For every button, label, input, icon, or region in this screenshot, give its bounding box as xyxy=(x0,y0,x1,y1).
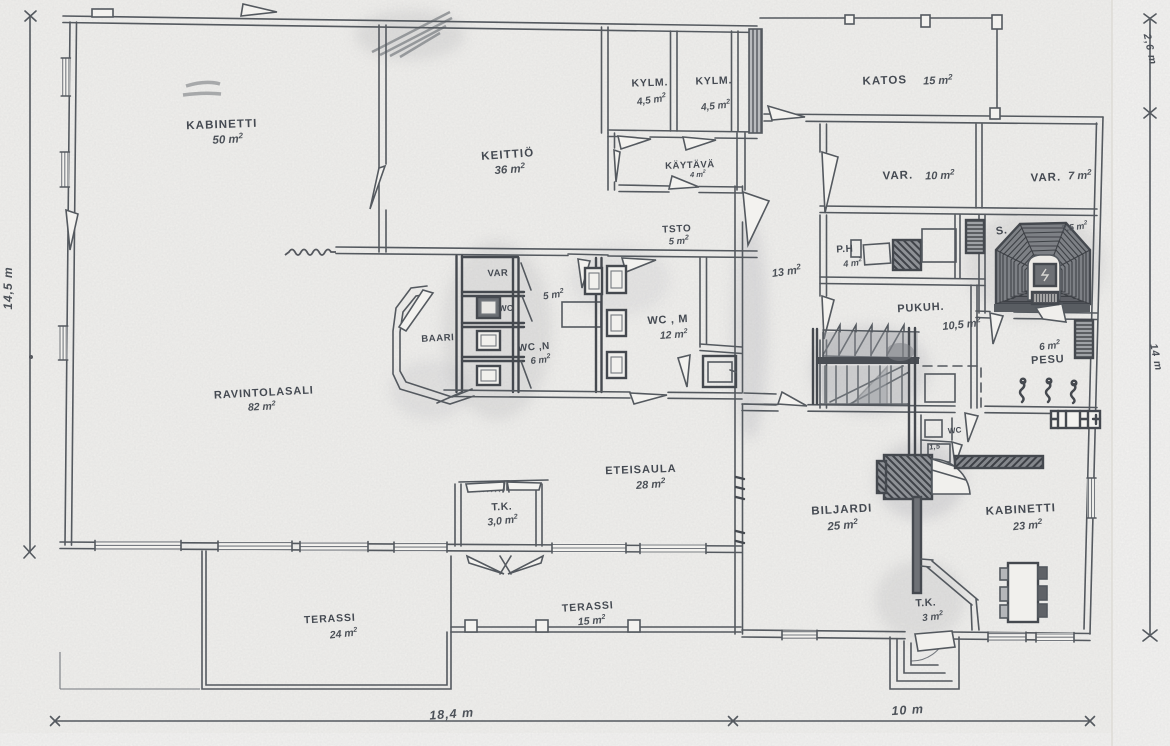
svg-text:1,5: 1,5 xyxy=(929,441,942,451)
svg-text:12 m2: 12 m2 xyxy=(659,328,688,342)
svg-text:VAR: VAR xyxy=(487,268,508,280)
svg-text:10 m: 10 m xyxy=(891,702,924,718)
svg-text:KATOS: KATOS xyxy=(862,74,907,88)
svg-text:KYLM.: KYLM. xyxy=(631,76,668,89)
svg-text:WC: WC xyxy=(498,303,513,314)
svg-text:KABINETTI: KABINETTI xyxy=(186,118,258,132)
svg-text:WC ,N: WC ,N xyxy=(518,341,551,354)
svg-text:VAR.: VAR. xyxy=(882,169,913,182)
svg-text:BAARI: BAARI xyxy=(421,332,455,345)
svg-text:S.: S. xyxy=(995,224,1008,237)
svg-text:82 m2: 82 m2 xyxy=(248,400,277,413)
svg-text:ETEISAULA: ETEISAULA xyxy=(605,463,677,477)
svg-text:P.H: P.H xyxy=(836,244,853,256)
svg-text:T.K.: T.K. xyxy=(915,596,936,609)
svg-text:KYLM.: KYLM. xyxy=(695,74,732,87)
svg-text:T.K.: T.K. xyxy=(491,500,512,513)
svg-text:15 m2: 15 m2 xyxy=(577,614,606,628)
svg-text:PESU: PESU xyxy=(1031,353,1065,367)
svg-text:VAR.: VAR. xyxy=(1030,171,1061,184)
svg-text:14,5 m: 14,5 m xyxy=(1,266,15,309)
svg-text:PUKUH.: PUKUH. xyxy=(897,301,945,315)
svg-text:WC , M: WC , M xyxy=(647,313,688,327)
svg-text:WC: WC xyxy=(948,425,962,435)
